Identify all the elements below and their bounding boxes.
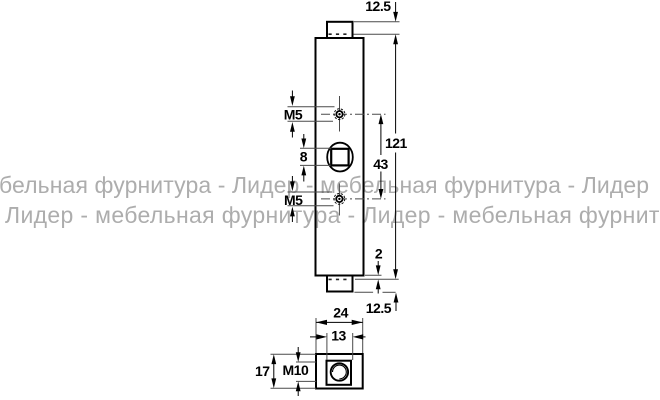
svg-text:17: 17 xyxy=(255,363,270,379)
svg-text:24: 24 xyxy=(333,305,348,321)
svg-text:43: 43 xyxy=(373,156,388,172)
svg-text:121: 121 xyxy=(385,135,408,151)
svg-text:M5: M5 xyxy=(284,106,303,122)
svg-text:8: 8 xyxy=(300,149,308,165)
svg-text:бельная фурнитура - Лидер - ме: бельная фурнитура - Лидер - мебельная фу… xyxy=(0,172,649,198)
svg-text:M5: M5 xyxy=(284,192,303,208)
svg-text:M10: M10 xyxy=(283,362,309,378)
svg-text:12.5: 12.5 xyxy=(366,300,392,316)
svg-text:2: 2 xyxy=(375,246,383,262)
svg-text:13: 13 xyxy=(331,328,346,344)
svg-text:12.5: 12.5 xyxy=(365,0,391,14)
